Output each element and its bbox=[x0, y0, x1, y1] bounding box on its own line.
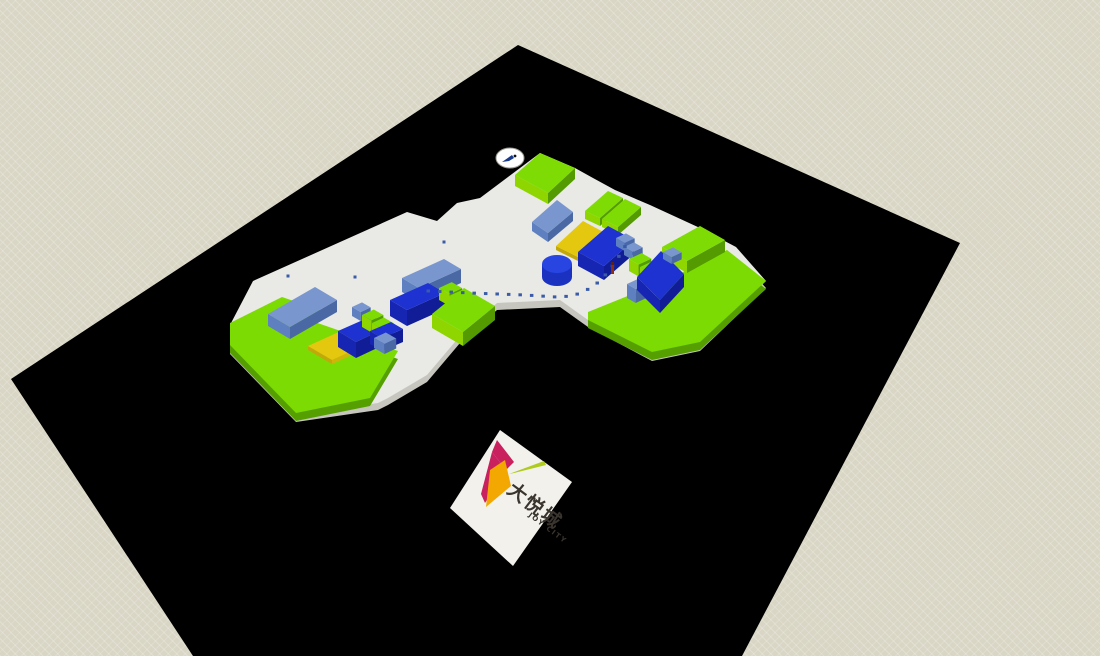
path-dot bbox=[472, 292, 476, 295]
path-dot bbox=[507, 293, 511, 296]
path-dot bbox=[443, 241, 446, 244]
path-dot bbox=[604, 273, 608, 276]
path-dot bbox=[595, 282, 599, 285]
ground-plane bbox=[11, 45, 960, 656]
path-dot bbox=[617, 255, 621, 258]
path-dot bbox=[586, 288, 590, 291]
path-dot bbox=[575, 293, 579, 296]
path-dot bbox=[354, 276, 357, 279]
navigation-cursor-icon[interactable] bbox=[496, 148, 524, 168]
person-figure-head bbox=[611, 262, 614, 265]
ground-plane-face bbox=[11, 45, 960, 656]
path-dot bbox=[484, 292, 488, 295]
path-dot bbox=[461, 291, 465, 294]
path-dot bbox=[530, 294, 534, 297]
person-figure[interactable] bbox=[611, 265, 614, 274]
path-dot bbox=[541, 295, 545, 298]
path-dot bbox=[518, 293, 522, 296]
path-dot bbox=[623, 245, 627, 248]
model-scene: 大悦城 JOY CITY bbox=[0, 0, 1100, 656]
path-dot bbox=[449, 291, 453, 294]
path-dot bbox=[427, 290, 431, 293]
cylinder-top[interactable] bbox=[542, 255, 572, 273]
cursor-dot bbox=[514, 155, 517, 158]
path-dot bbox=[287, 275, 290, 278]
path-dot bbox=[438, 290, 442, 293]
path-dot bbox=[553, 295, 557, 298]
path-dot bbox=[495, 292, 499, 295]
viewport-3d[interactable]: 大悦城 JOY CITY bbox=[0, 0, 1100, 656]
path-dot bbox=[564, 295, 568, 298]
